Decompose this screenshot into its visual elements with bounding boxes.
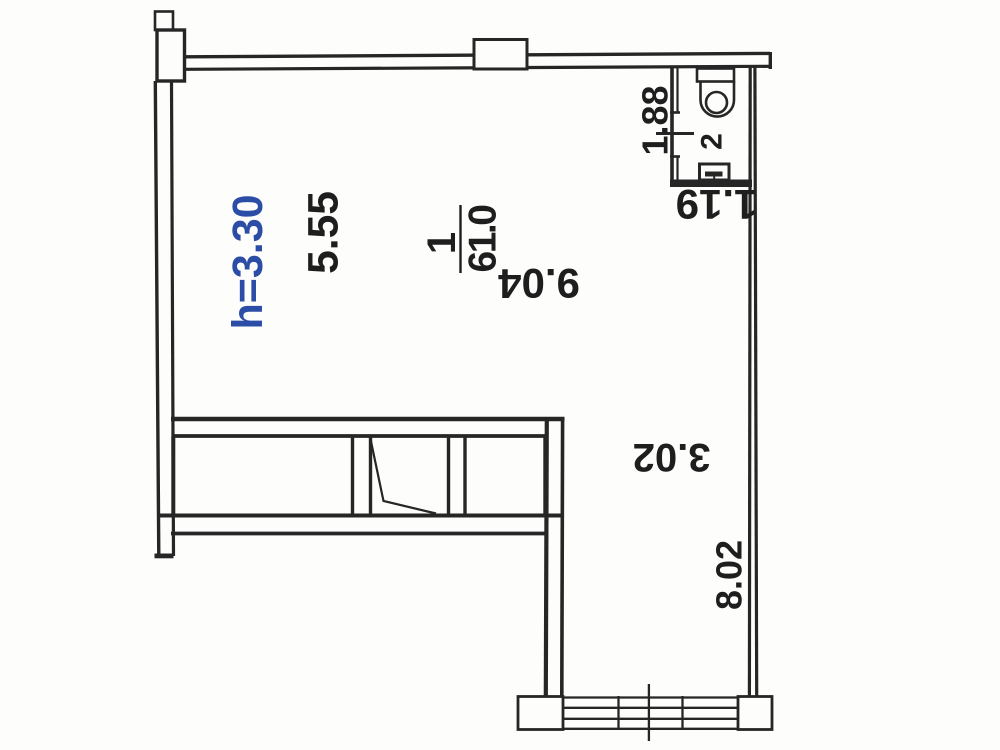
- svg-text:3.02: 3.02: [633, 435, 711, 479]
- svg-text:61.0: 61.0: [462, 205, 505, 273]
- svg-text:9.04: 9.04: [497, 260, 579, 307]
- svg-text:8.02: 8.02: [709, 540, 750, 610]
- svg-text:1.88: 1.88: [635, 85, 676, 155]
- svg-text:1.19: 1.19: [676, 181, 758, 228]
- svg-text:h=3.30: h=3.30: [224, 194, 272, 329]
- svg-text:2: 2: [696, 133, 729, 150]
- svg-text:1: 1: [420, 232, 464, 254]
- svg-text:5.55: 5.55: [301, 191, 348, 274]
